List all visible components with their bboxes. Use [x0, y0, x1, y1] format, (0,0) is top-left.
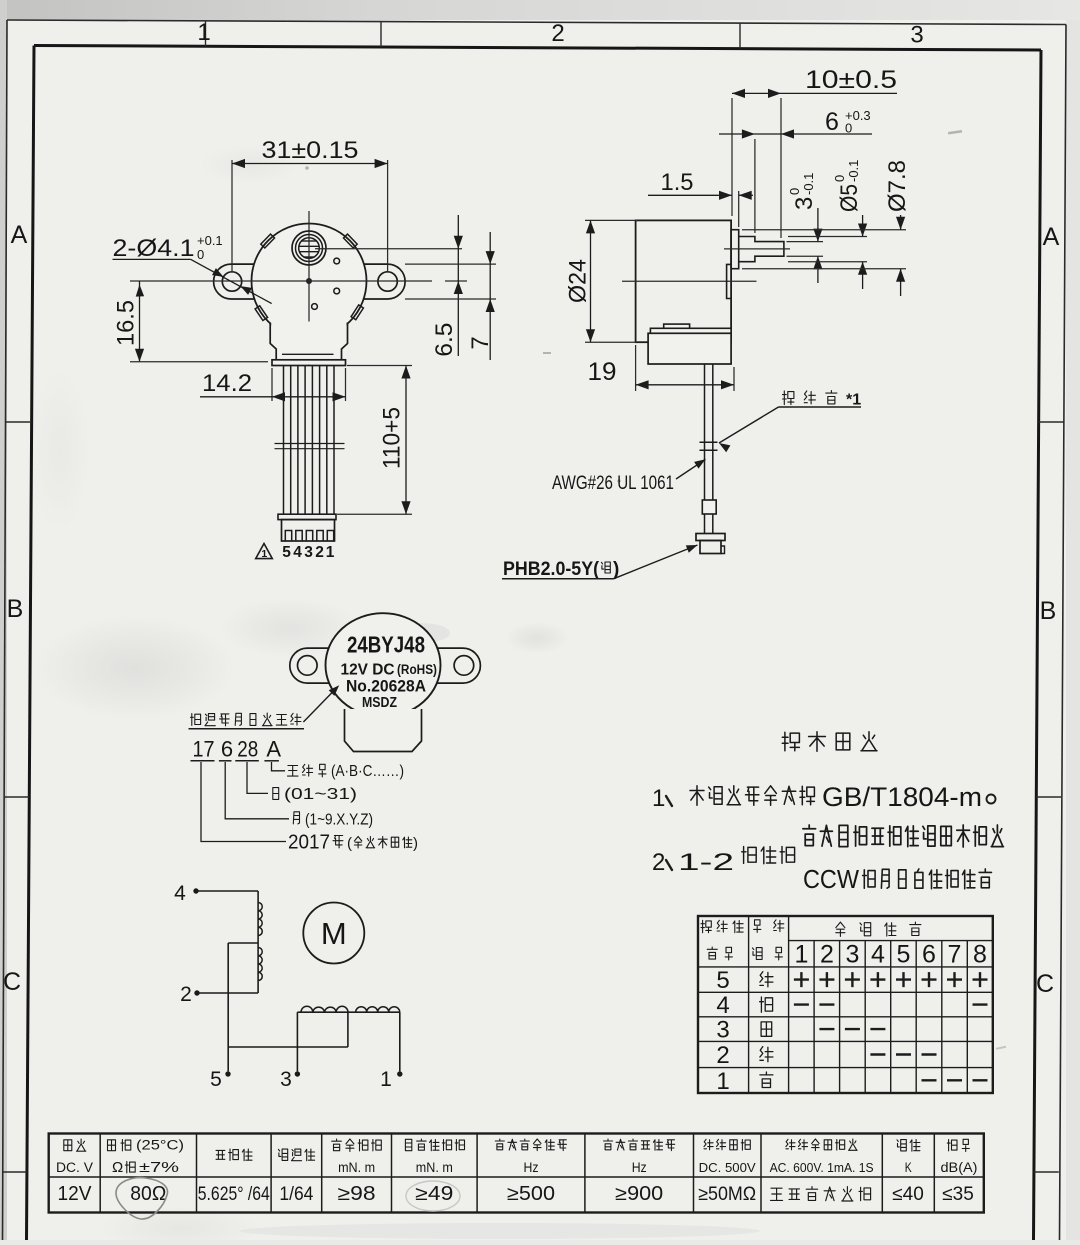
svg-text:3: 3: [280, 1068, 292, 1091]
svg-text:2: 2: [716, 1042, 729, 1069]
svg-text:2: 2: [652, 849, 665, 876]
svg-text:1-2: 1-2: [678, 849, 734, 876]
svg-text:C: C: [3, 968, 21, 996]
svg-text:2: 2: [180, 983, 192, 1006]
svg-text:0: 0: [787, 188, 802, 195]
svg-text:12V: 12V: [58, 1183, 93, 1205]
svg-text:4: 4: [871, 941, 885, 969]
svg-text:≥900: ≥900: [615, 1183, 663, 1205]
svg-text:Ø7.8: Ø7.8: [884, 160, 911, 212]
svg-text:14.2: 14.2: [202, 370, 252, 397]
svg-text:5: 5: [897, 941, 911, 969]
svg-text:1: 1: [326, 544, 335, 561]
svg-text:80Ω: 80Ω: [130, 1183, 166, 1205]
svg-text:±7%: ±7%: [139, 1159, 179, 1176]
svg-text:1: 1: [380, 1068, 392, 1091]
svg-text:1: 1: [716, 1068, 729, 1095]
svg-text:M: M: [321, 916, 347, 951]
svg-text:1: 1: [197, 19, 210, 46]
svg-text:5: 5: [282, 544, 291, 561]
svg-text:1: 1: [794, 941, 808, 969]
svg-text:≥98: ≥98: [338, 1183, 376, 1205]
svg-text:5.625° /64: 5.625° /64: [198, 1184, 270, 1205]
svg-text:Ø5: Ø5: [836, 184, 863, 212]
svg-text:6.5: 6.5: [431, 323, 458, 357]
svg-text:28: 28: [237, 737, 258, 762]
svg-text:Ø24: Ø24: [565, 259, 592, 303]
svg-text:10±0.5: 10±0.5: [805, 66, 897, 94]
svg-text:5: 5: [210, 1068, 222, 1091]
svg-text:(A·B·C……): (A·B·C……): [331, 763, 404, 780]
svg-text:4: 4: [293, 544, 302, 561]
svg-text:4: 4: [174, 882, 186, 905]
svg-text:6: 6: [825, 108, 839, 136]
svg-text:2: 2: [315, 544, 324, 561]
svg-text:19: 19: [588, 358, 617, 386]
svg-text:1: 1: [652, 785, 665, 812]
svg-text:(RoHS): (RoHS): [397, 662, 437, 677]
svg-text:A: A: [266, 737, 281, 762]
svg-text:≤35: ≤35: [942, 1184, 974, 1205]
svg-text:*1: *1: [846, 392, 861, 409]
svg-text:3: 3: [791, 197, 818, 210]
svg-text:24BYJ48: 24BYJ48: [347, 632, 425, 658]
svg-text:110+5: 110+5: [379, 407, 406, 469]
svg-text:≥50MΩ: ≥50MΩ: [698, 1184, 756, 1205]
svg-text:16.5: 16.5: [113, 300, 140, 346]
svg-text:AC. 600V. 1mA. 1S: AC. 600V. 1mA. 1S: [770, 1160, 874, 1175]
svg-text:17: 17: [193, 737, 215, 762]
svg-text:12V DC: 12V DC: [341, 662, 395, 679]
svg-text:3: 3: [910, 22, 923, 49]
svg-text:B: B: [7, 595, 24, 623]
svg-text:1/64: 1/64: [279, 1184, 313, 1205]
svg-text:mN. m: mN. m: [416, 1160, 453, 1175]
svg-text:Hz: Hz: [524, 1160, 539, 1175]
svg-text:0: 0: [845, 121, 852, 136]
svg-text:PHB2.0-5Y(: PHB2.0-5Y(: [503, 559, 600, 580]
svg-text:0: 0: [832, 175, 847, 182]
svg-text:(25°C): (25°C): [136, 1138, 184, 1153]
svg-text:5: 5: [716, 967, 729, 994]
svg-text:4: 4: [716, 992, 729, 1019]
svg-text:1.5: 1.5: [661, 169, 694, 196]
svg-text:): ): [413, 835, 418, 852]
svg-text:2: 2: [820, 941, 834, 969]
svg-text:0: 0: [197, 247, 204, 262]
svg-text:≥500: ≥500: [507, 1183, 555, 1205]
svg-text:7: 7: [467, 336, 494, 349]
svg-text:6: 6: [922, 941, 936, 969]
svg-text:7: 7: [948, 941, 962, 969]
svg-text:AWG#26 UL 1061: AWG#26 UL 1061: [552, 473, 674, 494]
svg-text:3: 3: [716, 1017, 729, 1044]
svg-text:DC. 500V: DC. 500V: [699, 1160, 756, 1175]
svg-text:C: C: [1036, 970, 1054, 998]
svg-text:B: B: [1040, 597, 1057, 625]
svg-text:Ω: Ω: [112, 1159, 123, 1176]
svg-text:A: A: [1043, 223, 1060, 251]
svg-text:mN. m: mN. m: [338, 1160, 375, 1175]
svg-text:Hz: Hz: [632, 1160, 647, 1175]
svg-text:31±0.15: 31±0.15: [262, 137, 359, 164]
svg-text:≤40: ≤40: [892, 1184, 924, 1205]
svg-text:No.20628A: No.20628A: [346, 678, 426, 696]
svg-text:A: A: [11, 221, 28, 249]
svg-text:(1~9.X.Y.Z): (1~9.X.Y.Z): [305, 812, 373, 829]
svg-text:2017: 2017: [288, 832, 330, 854]
svg-text:(: (: [347, 835, 352, 852]
svg-text:3: 3: [304, 544, 313, 561]
svg-text:≥49: ≥49: [415, 1183, 453, 1205]
svg-text:+0.1: +0.1: [197, 233, 223, 248]
svg-text:DC. V: DC. V: [56, 1160, 93, 1175]
svg-text:-0.1: -0.1: [801, 173, 816, 195]
svg-text:K: K: [905, 1160, 912, 1175]
svg-text:8: 8: [973, 941, 987, 969]
svg-text:MSDZ: MSDZ: [362, 694, 397, 711]
svg-text:(01~31): (01~31): [284, 786, 357, 803]
svg-text:1: 1: [261, 548, 267, 560]
svg-text:CCW: CCW: [803, 864, 859, 894]
svg-text:2: 2: [551, 20, 564, 47]
svg-text:2-Ø4.1: 2-Ø4.1: [113, 235, 195, 262]
svg-text:3: 3: [845, 941, 859, 969]
svg-text:6: 6: [221, 737, 233, 762]
svg-text:GB/T1804-m: GB/T1804-m: [822, 782, 982, 812]
svg-text:-0.1: -0.1: [846, 160, 861, 182]
svg-text:dB(A): dB(A): [941, 1160, 978, 1175]
